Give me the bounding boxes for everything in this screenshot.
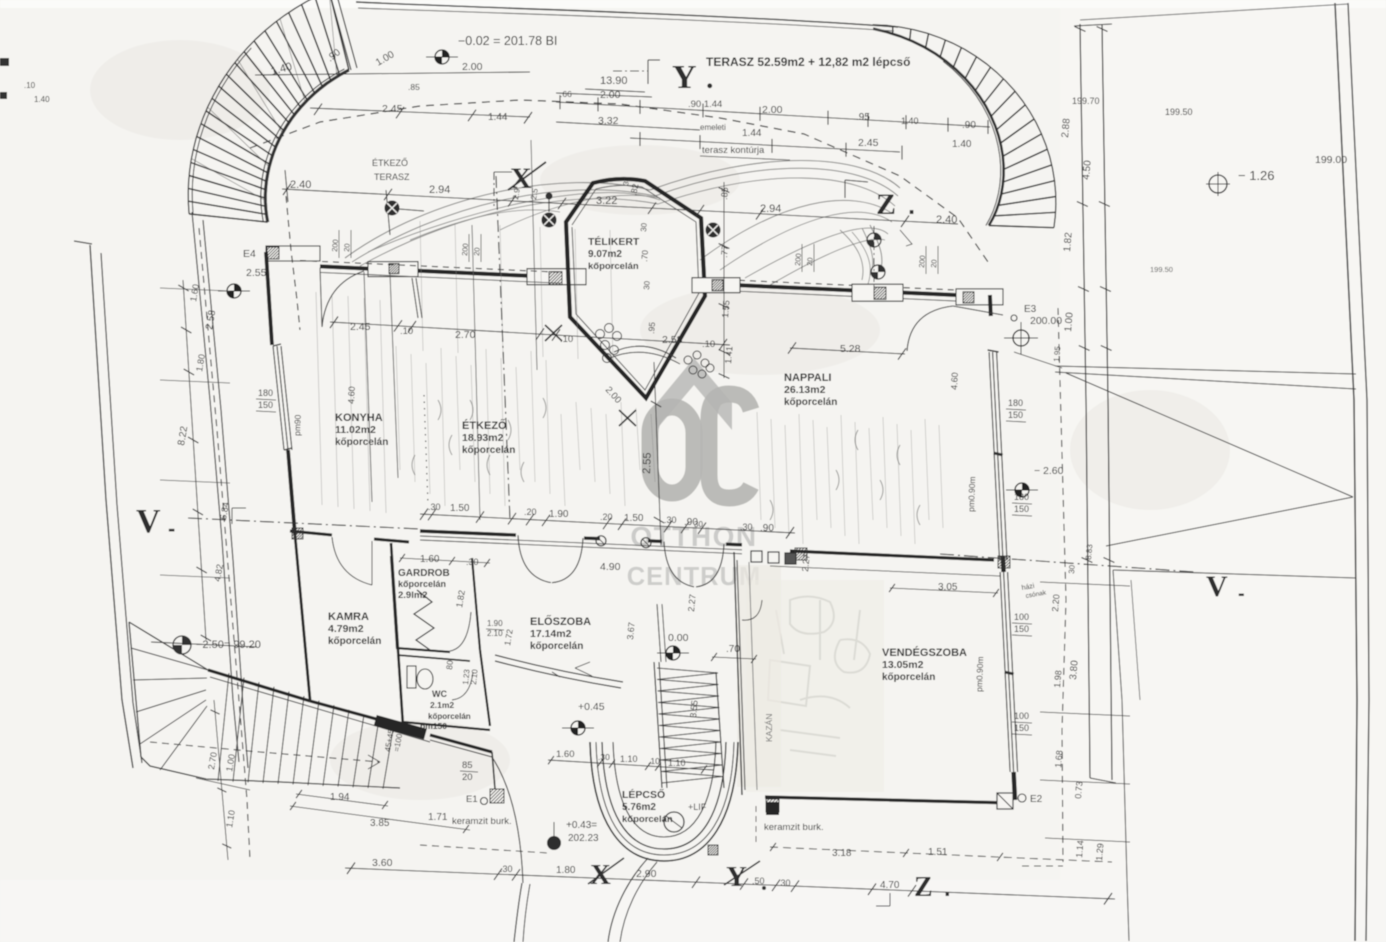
svg-text:3.67: 3.67 — [625, 622, 637, 640]
svg-text:1.68: 1.68 — [1053, 750, 1064, 768]
svg-text:2.45: 2.45 — [858, 137, 879, 149]
svg-text:2.10: 2.10 — [487, 629, 503, 638]
svg-text:26.13m2: 26.13m2 — [784, 384, 826, 396]
svg-text:199.50: 199.50 — [1165, 107, 1193, 117]
svg-text:2.55: 2.55 — [641, 452, 654, 474]
svg-text:4.60: 4.60 — [346, 386, 357, 404]
svg-text:2.90: 2.90 — [636, 868, 657, 880]
svg-text:ÉTKEZŐ: ÉTKEZŐ — [462, 419, 507, 432]
svg-text:1.40: 1.40 — [952, 139, 972, 150]
svg-text:− 2.60: − 2.60 — [1034, 465, 1064, 477]
svg-text:kőporcelán: kőporcelán — [622, 814, 673, 825]
svg-text:30: 30 — [642, 280, 652, 290]
svg-text:200: 200 — [793, 253, 803, 266]
svg-text:2.27: 2.27 — [800, 554, 812, 572]
svg-text:2.00: 2.00 — [462, 61, 483, 73]
svg-text:150: 150 — [258, 400, 273, 410]
svg-text:30: 30 — [694, 520, 703, 529]
svg-text:13.05m2: 13.05m2 — [882, 659, 924, 671]
svg-text:Z: Z — [876, 188, 896, 221]
svg-text:LÉPCSŐ: LÉPCSŐ — [622, 788, 665, 801]
svg-text:20: 20 — [929, 259, 939, 268]
svg-text:-: - — [1238, 583, 1245, 605]
svg-text:emeleti: emeleti — [700, 123, 726, 132]
svg-text:1.14: 1.14 — [1074, 840, 1085, 858]
svg-text:-: - — [168, 516, 175, 541]
svg-text:.10: .10 — [702, 339, 715, 350]
svg-text:5.28: 5.28 — [840, 343, 861, 355]
svg-text:TERASZ: TERASZ — [374, 172, 410, 182]
svg-text:20: 20 — [462, 772, 473, 783]
svg-text:.90: .90 — [962, 120, 976, 131]
svg-text:.90: .90 — [760, 523, 774, 534]
svg-text:ÉTKEZŐ: ÉTKEZŐ — [372, 158, 408, 168]
svg-text:pm150: pm150 — [420, 721, 447, 731]
svg-text:KAZÁN: KAZÁN — [764, 714, 774, 742]
svg-text:.30: .30 — [664, 515, 677, 525]
svg-text:.30: .30 — [740, 522, 753, 532]
svg-text:20: 20 — [342, 243, 352, 252]
svg-text:V: V — [136, 503, 161, 540]
svg-text:1.40: 1.40 — [34, 95, 50, 104]
svg-text:85: 85 — [462, 760, 473, 771]
svg-text:180: 180 — [258, 388, 273, 398]
svg-text:.: . — [944, 875, 951, 902]
svg-text:KAMRA: KAMRA — [328, 611, 369, 623]
svg-text:kőporcelán: kőporcelán — [335, 437, 388, 448]
svg-text:2.70: 2.70 — [455, 329, 476, 341]
svg-text:199.50: 199.50 — [1150, 265, 1173, 274]
svg-text:1.00: 1.00 — [1063, 311, 1076, 332]
svg-text:Y: Y — [672, 59, 697, 96]
svg-text:.30: .30 — [500, 864, 513, 874]
svg-text:5.76m2: 5.76m2 — [622, 802, 656, 813]
svg-text:NAPPALI: NAPPALI — [784, 372, 831, 384]
svg-text:+0.43=: +0.43= — [566, 820, 597, 831]
svg-text:200: 200 — [330, 239, 340, 252]
svg-text:kőporcelán: kőporcelán — [398, 579, 446, 589]
svg-text:202.23: 202.23 — [568, 833, 599, 844]
svg-text:199.70: 199.70 — [1072, 96, 1100, 106]
svg-text:150: 150 — [1014, 624, 1029, 634]
svg-text:3.55: 3.55 — [688, 700, 700, 718]
svg-text:ELŐSZOBA: ELŐSZOBA — [530, 615, 591, 628]
svg-text:KONYHA: KONYHA — [335, 412, 383, 424]
svg-text:kőporcelán: kőporcelán — [328, 636, 381, 647]
svg-text:.66: .66 — [560, 89, 572, 99]
svg-text:30: 30 — [1067, 564, 1077, 574]
svg-text:30: 30 — [639, 222, 649, 232]
svg-text:4.60: 4.60 — [949, 372, 960, 390]
svg-text:V: V — [1206, 570, 1228, 603]
svg-text:kőporcelán: kőporcelán — [588, 261, 639, 272]
svg-text:.10: .10 — [400, 326, 413, 337]
svg-text:.50: .50 — [752, 876, 765, 886]
svg-text:3.18: 3.18 — [832, 848, 852, 859]
svg-text:TÉLIKERT: TÉLIKERT — [588, 235, 640, 248]
svg-text:2.00: 2.00 — [762, 104, 783, 116]
svg-text:2.58: 2.58 — [662, 334, 683, 346]
svg-text:2.10: 2.10 — [469, 668, 480, 685]
svg-text:1.40: 1.40 — [901, 116, 919, 126]
svg-text:2.55: 2.55 — [246, 267, 267, 279]
svg-text:1.94: 1.94 — [330, 792, 350, 803]
svg-text:.10: .10 — [24, 81, 36, 90]
svg-text:E1: E1 — [466, 794, 478, 805]
svg-text:20: 20 — [805, 257, 815, 266]
svg-text:3.22: 3.22 — [596, 195, 617, 207]
svg-text:3.60: 3.60 — [372, 857, 393, 869]
svg-text:E2: E2 — [1030, 794, 1043, 805]
svg-text:.95: .95 — [646, 321, 657, 334]
svg-text:1.55: 1.55 — [720, 300, 731, 318]
svg-text:1.50: 1.50 — [624, 513, 644, 524]
svg-text:2.88: 2.88 — [1060, 117, 1073, 138]
svg-text:4.70: 4.70 — [880, 880, 900, 891]
svg-text:1.51: 1.51 — [928, 847, 948, 858]
svg-text:1.10: 1.10 — [620, 754, 638, 764]
svg-text:−0.02 = 201.78 BI: −0.02 = 201.78 BI — [458, 34, 557, 48]
svg-text:200: 200 — [917, 255, 927, 268]
svg-text:E4: E4 — [243, 248, 256, 260]
svg-text:2.9lm2: 2.9lm2 — [398, 590, 428, 601]
svg-text:.20: .20 — [600, 512, 613, 522]
svg-text:1.41: 1.41 — [723, 346, 734, 364]
svg-text:2.94: 2.94 — [760, 203, 781, 215]
svg-text:terasz kontúrja: terasz kontúrja — [702, 145, 765, 156]
svg-text:2.40: 2.40 — [936, 214, 957, 226]
svg-text:4.79m2: 4.79m2 — [328, 623, 364, 635]
svg-text:200: 200 — [460, 243, 470, 256]
svg-text:kőporcelán: kőporcelán — [882, 672, 935, 683]
svg-text:1.29: 1.29 — [1094, 843, 1105, 861]
svg-text:.30: .30 — [778, 878, 791, 888]
svg-text:kőporcelán: kőporcelán — [428, 712, 471, 721]
svg-text:1.80: 1.80 — [556, 865, 576, 876]
svg-text:pm90: pm90 — [292, 414, 303, 436]
svg-text:pm0.90m: pm0.90m — [966, 476, 977, 512]
svg-text:1.60: 1.60 — [556, 749, 575, 760]
svg-text:− 1.26: − 1.26 — [1238, 168, 1275, 183]
svg-text:2.20: 2.20 — [1050, 594, 1061, 612]
svg-text:WC: WC — [432, 689, 447, 699]
svg-text:1.90: 1.90 — [549, 509, 569, 520]
svg-text:199.00: 199.00 — [1315, 154, 1347, 166]
svg-text:pm0.90m: pm0.90m — [974, 656, 985, 692]
svg-text:17.14m2: 17.14m2 — [530, 628, 572, 640]
svg-text:80: 80 — [444, 659, 455, 670]
svg-text:.90 1.44: .90 1.44 — [688, 99, 722, 110]
svg-text:kőporcelán: kőporcelán — [530, 641, 583, 652]
svg-text:150: 150 — [1014, 723, 1029, 733]
svg-text:VENDÉGSZOBA: VENDÉGSZOBA — [882, 646, 967, 659]
svg-text:+LIF: +LIF — [688, 802, 707, 812]
svg-text:20: 20 — [472, 247, 482, 256]
svg-text:2.27: 2.27 — [686, 594, 698, 612]
svg-text:2.94: 2.94 — [429, 184, 450, 196]
svg-text:2.00: 2.00 — [600, 89, 621, 101]
svg-text:100: 100 — [1014, 711, 1029, 721]
svg-text:3.85: 3.85 — [370, 818, 390, 829]
svg-text:13.90: 13.90 — [600, 75, 628, 87]
svg-text:.70: .70 — [639, 249, 650, 262]
svg-text:Z: Z — [914, 872, 933, 903]
svg-text:GARDROB: GARDROB — [398, 568, 450, 579]
svg-text:100: 100 — [1014, 612, 1029, 622]
svg-text:.30: .30 — [598, 752, 610, 762]
svg-text:1.95: 1.95 — [1052, 345, 1062, 362]
svg-text:1.82: 1.82 — [1062, 231, 1075, 252]
svg-text:kőporcelán: kőporcelán — [784, 397, 837, 408]
svg-text:1.44: 1.44 — [742, 128, 762, 139]
svg-text:4.50: 4.50 — [1081, 159, 1094, 180]
svg-text:2.45: 2.45 — [350, 321, 371, 333]
svg-text:1.90: 1.90 — [487, 619, 503, 628]
svg-text:1.10: 1.10 — [668, 758, 686, 768]
svg-text:0.73: 0.73 — [1073, 781, 1084, 799]
svg-text:.70: .70 — [726, 644, 740, 655]
svg-text:150: 150 — [1008, 410, 1023, 420]
svg-text:TERASZ 52.59m2 + 12,82 m2 lépc: TERASZ 52.59m2 + 12,82 m2 lépcső — [706, 55, 910, 69]
svg-text:1.44: 1.44 — [488, 112, 508, 123]
svg-text:150: 150 — [1014, 504, 1029, 514]
svg-text:.30: .30 — [428, 502, 441, 512]
svg-text:.10: .10 — [560, 334, 573, 345]
svg-text:E3: E3 — [1024, 304, 1037, 315]
svg-text:1.71: 1.71 — [428, 812, 448, 823]
svg-text:.20: .20 — [524, 507, 537, 517]
svg-text:2.40: 2.40 — [290, 179, 311, 191]
svg-text:4.90: 4.90 — [600, 561, 621, 573]
svg-text:.: . — [908, 190, 915, 220]
svg-text:2.1m2: 2.1m2 — [430, 700, 454, 710]
svg-text:keramzit burk.: keramzit burk. — [764, 822, 824, 833]
svg-text:1.50: 1.50 — [450, 503, 470, 514]
svg-text:0.00: 0.00 — [668, 632, 689, 644]
svg-text:.10: .10 — [648, 756, 660, 766]
svg-text:9.07m2: 9.07m2 — [588, 249, 622, 260]
svg-text:8.83: 8.83 — [1084, 543, 1094, 560]
svg-text:1.98: 1.98 — [1052, 670, 1063, 688]
svg-text:keramzit burk.: keramzit burk. — [452, 816, 512, 827]
svg-text:.95: .95 — [856, 112, 870, 123]
svg-text:200.00: 200.00 — [1030, 315, 1062, 327]
svg-text:+0.45: +0.45 — [578, 701, 605, 713]
svg-text:180: 180 — [1008, 398, 1023, 408]
svg-text:18.93m2: 18.93m2 — [462, 432, 504, 444]
svg-text:.85: .85 — [408, 82, 420, 92]
svg-text:3.80: 3.80 — [1068, 659, 1081, 680]
